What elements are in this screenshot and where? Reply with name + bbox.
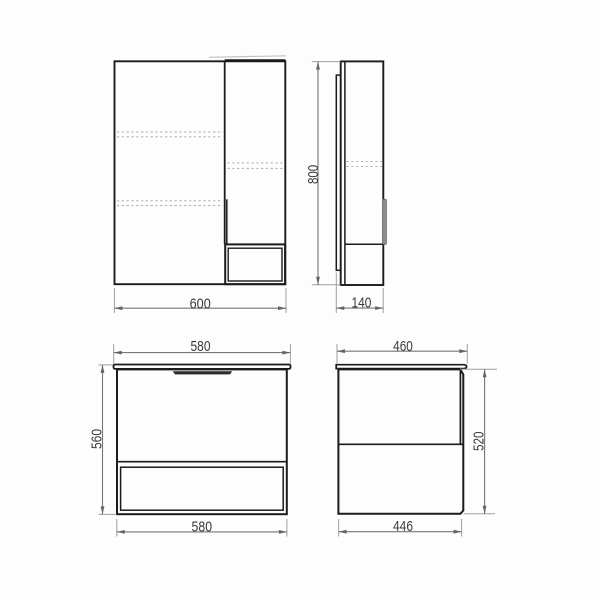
- svg-text:520: 520: [471, 431, 488, 451]
- svg-text:560: 560: [89, 429, 106, 449]
- svg-text:580: 580: [191, 338, 211, 355]
- svg-text:800: 800: [305, 165, 322, 184]
- svg-text:600: 600: [190, 295, 211, 312]
- svg-text:460: 460: [393, 338, 413, 355]
- svg-text:140: 140: [351, 295, 371, 312]
- svg-text:580: 580: [192, 518, 213, 535]
- svg-text:446: 446: [393, 518, 413, 535]
